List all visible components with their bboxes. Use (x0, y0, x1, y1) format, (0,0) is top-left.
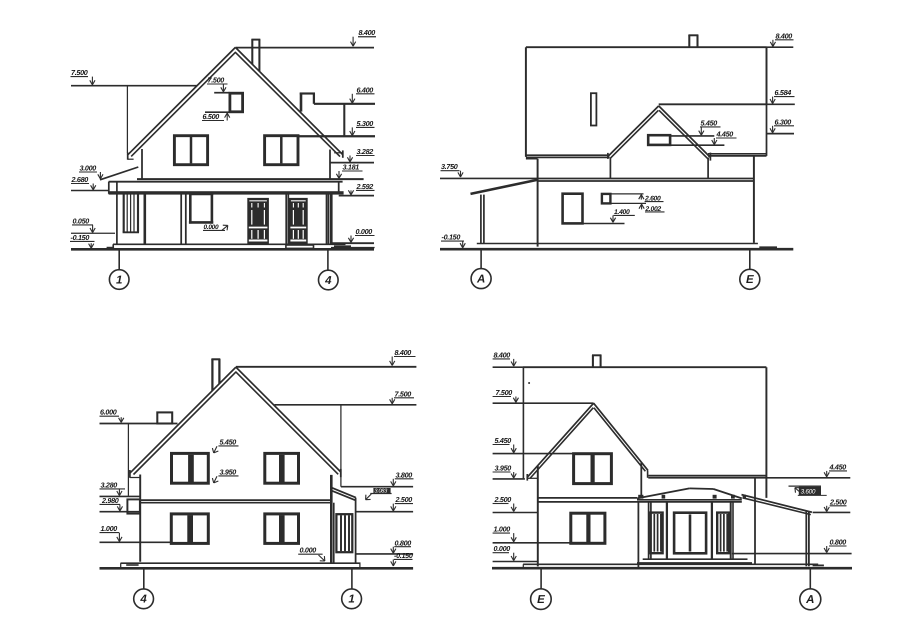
svg-text:2.500: 2.500 (395, 495, 413, 504)
svg-text:6.584: 6.584 (775, 88, 792, 97)
svg-text:8.400: 8.400 (359, 28, 376, 37)
svg-text:8.400: 8.400 (776, 31, 793, 40)
svg-text:8.400: 8.400 (494, 350, 511, 359)
svg-text:2.592: 2.592 (356, 182, 374, 191)
svg-text:3.800: 3.800 (396, 470, 413, 479)
svg-text:A: A (805, 594, 814, 606)
svg-text:0.050: 0.050 (73, 216, 90, 225)
svg-text:5.450: 5.450 (495, 436, 512, 445)
svg-text:1: 1 (348, 594, 354, 606)
svg-text:4: 4 (139, 594, 147, 606)
svg-text:3.282: 3.282 (357, 147, 374, 156)
svg-text:3.950: 3.950 (220, 467, 237, 476)
svg-text:7.500: 7.500 (71, 68, 88, 77)
svg-text:3.000: 3.000 (80, 164, 97, 173)
svg-text:-0.150: -0.150 (394, 551, 413, 560)
svg-text:2.500: 2.500 (494, 495, 512, 504)
svg-text:3.280: 3.280 (101, 480, 118, 489)
svg-text:3.750: 3.750 (441, 162, 458, 171)
svg-text:6.300: 6.300 (775, 117, 792, 126)
svg-text:1.000: 1.000 (101, 524, 118, 533)
svg-text:2.680: 2.680 (71, 175, 89, 184)
svg-text:4.450: 4.450 (829, 463, 847, 472)
svg-text:0.800: 0.800 (830, 538, 847, 547)
svg-text:E: E (746, 274, 754, 286)
svg-text:1: 1 (116, 274, 122, 286)
svg-text:3.181: 3.181 (343, 163, 360, 172)
svg-text:4.450: 4.450 (716, 130, 734, 139)
svg-text:1.000: 1.000 (494, 525, 511, 534)
svg-text:5.450: 5.450 (701, 118, 718, 127)
svg-text:7.500: 7.500 (208, 76, 225, 85)
svg-text:0.000: 0.000 (356, 227, 373, 236)
svg-text:5.450: 5.450 (220, 437, 237, 446)
svg-text:6.400: 6.400 (357, 85, 374, 94)
svg-text:5.300: 5.300 (357, 119, 374, 128)
svg-text:2.500: 2.500 (829, 497, 847, 506)
svg-text:0.800: 0.800 (395, 538, 412, 547)
svg-text:0.000: 0.000 (494, 544, 511, 553)
svg-text:6.000: 6.000 (100, 408, 117, 417)
svg-text:7.500: 7.500 (496, 388, 513, 397)
svg-text:A: A (476, 274, 485, 286)
svg-text:-0.150: -0.150 (71, 233, 90, 242)
svg-text:3.600: 3.600 (801, 488, 816, 495)
svg-text:8.400: 8.400 (395, 348, 412, 357)
svg-text:7.500: 7.500 (395, 389, 412, 398)
svg-text:-0.150: -0.150 (442, 233, 461, 242)
svg-text:0.000: 0.000 (300, 546, 317, 555)
svg-text:3.950: 3.950 (495, 464, 512, 473)
svg-text:4: 4 (324, 275, 332, 287)
svg-text:2.980: 2.980 (101, 496, 119, 505)
svg-text:6.500: 6.500 (203, 112, 220, 121)
svg-text:E: E (537, 594, 545, 606)
